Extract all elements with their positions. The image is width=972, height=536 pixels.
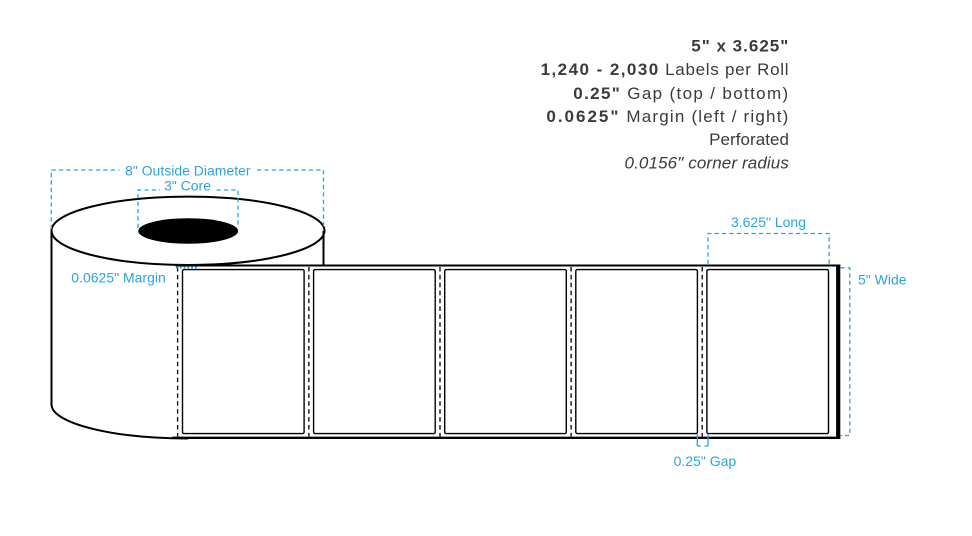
svg-text:0.0625" Margin: 0.0625" Margin bbox=[71, 270, 165, 286]
svg-text:5" x 3.625": 5" x 3.625" bbox=[691, 37, 789, 56]
svg-text:5" Wide: 5" Wide bbox=[858, 272, 907, 288]
svg-text:8" Outside Diameter: 8" Outside Diameter bbox=[125, 163, 251, 179]
svg-text:0.0625" Margin (left / right): 0.0625" Margin (left / right) bbox=[546, 107, 789, 126]
svg-text:1,240 - 2,030 Labels per Roll: 1,240 - 2,030 Labels per Roll bbox=[541, 60, 790, 79]
svg-text:3" Core: 3" Core bbox=[164, 178, 211, 194]
svg-text:0.25" Gap: 0.25" Gap bbox=[674, 453, 737, 469]
svg-text:0.0156" corner radius: 0.0156" corner radius bbox=[625, 153, 790, 172]
svg-text:Perforated: Perforated bbox=[709, 130, 789, 149]
svg-text:3.625" Long: 3.625" Long bbox=[731, 214, 806, 230]
svg-text:0.25" Gap (top / bottom): 0.25" Gap (top / bottom) bbox=[573, 84, 789, 103]
